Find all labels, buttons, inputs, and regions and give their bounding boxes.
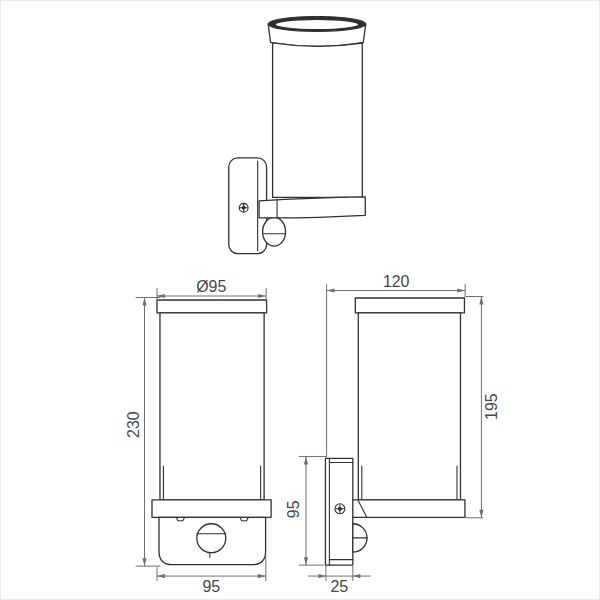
side-cap: [355, 298, 464, 313]
holder-ring: [259, 197, 365, 218]
front-cap: [157, 300, 267, 313]
dimension-front-height: 230: [125, 298, 161, 567]
dimension-label-bracket-height: 95: [285, 500, 302, 518]
side-sensor-knob: [353, 524, 367, 552]
dimension-side-bracket-depth: 25: [308, 566, 371, 595]
drawing-canvas: Ø95 230 95: [0, 0, 600, 600]
perspective-view: [229, 16, 366, 253]
dimension-side-glass-height: 195: [465, 297, 499, 518]
dimension-label-base-width: 95: [202, 578, 220, 595]
side-view: 120 195 95 25: [285, 273, 500, 595]
dimension-front-diameter: Ø95: [157, 278, 266, 299]
front-glass-body: [160, 313, 264, 500]
technical-drawing-svg: Ø95 230 95: [1, 1, 599, 599]
top-rim-inner: [275, 19, 359, 29]
front-view: Ø95 230 95: [125, 278, 272, 594]
sensor-knob: [263, 217, 286, 246]
glass-body: [273, 43, 363, 197]
dimension-side-bracket-height: 95: [285, 456, 327, 565]
front-holder-ring: [152, 500, 271, 517]
side-holder-ring: [352, 500, 465, 517]
screw-icon: [239, 203, 248, 212]
side-glass-body: [358, 313, 460, 500]
side-screw-icon: [335, 504, 345, 514]
dimension-label-glass-height: 195: [483, 393, 500, 420]
dimension-label-depth: 120: [383, 273, 410, 290]
dimension-label-diameter: Ø95: [196, 278, 226, 295]
dimension-label-overall-height: 230: [125, 411, 142, 438]
dimension-label-bracket-depth: 25: [331, 578, 349, 595]
